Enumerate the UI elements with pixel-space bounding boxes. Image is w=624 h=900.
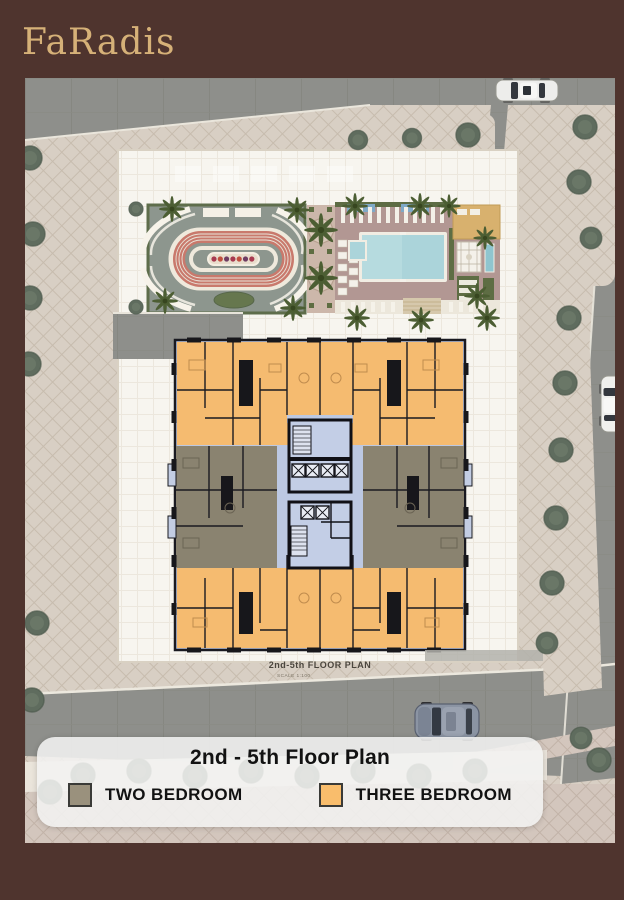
three-bedroom-swatch <box>319 783 343 807</box>
running-track <box>171 230 296 288</box>
three-bedroom-label: THREE BEDROOM <box>356 785 512 805</box>
legend-row: TWO BEDROOM THREE BEDROOM <box>68 783 512 807</box>
legend-item-three-bedroom: THREE BEDROOM <box>319 783 512 807</box>
site-plan-image: 2nd-5th FLOOR PLAN SCALE 1:100 <box>25 78 615 843</box>
brochure-page: FaRadis <box>0 0 624 900</box>
car-south <box>415 702 479 741</box>
stairs <box>291 526 307 556</box>
plaza-island-b <box>511 108 615 286</box>
site-plan-render: 2nd-5th FLOOR PLAN SCALE 1:100 <box>25 78 615 843</box>
plan-caption-scale: SCALE 1:100 <box>277 673 310 679</box>
two-bedroom-label: TWO BEDROOM <box>105 785 243 805</box>
legend-card: 2nd - 5th Floor Plan TWO BEDROOM THREE B… <box>37 737 543 827</box>
spa-pool <box>349 241 366 260</box>
entrance-canopy <box>425 650 543 661</box>
apartment-floor-plan <box>168 340 472 650</box>
car-north <box>496 79 558 103</box>
lawn-patch <box>214 292 254 308</box>
legend-title: 2nd - 5th Floor Plan <box>190 746 390 770</box>
swimming-pool <box>349 232 447 282</box>
car-east <box>600 376 616 432</box>
brand-logo: FaRadis <box>22 22 175 63</box>
pavilion <box>457 242 481 272</box>
two-bedroom-swatch <box>68 783 92 807</box>
legend-item-two-bedroom: TWO BEDROOM <box>68 783 243 807</box>
plan-caption-title: 2nd-5th FLOOR PLAN <box>269 660 372 670</box>
kids-pool <box>485 244 494 272</box>
